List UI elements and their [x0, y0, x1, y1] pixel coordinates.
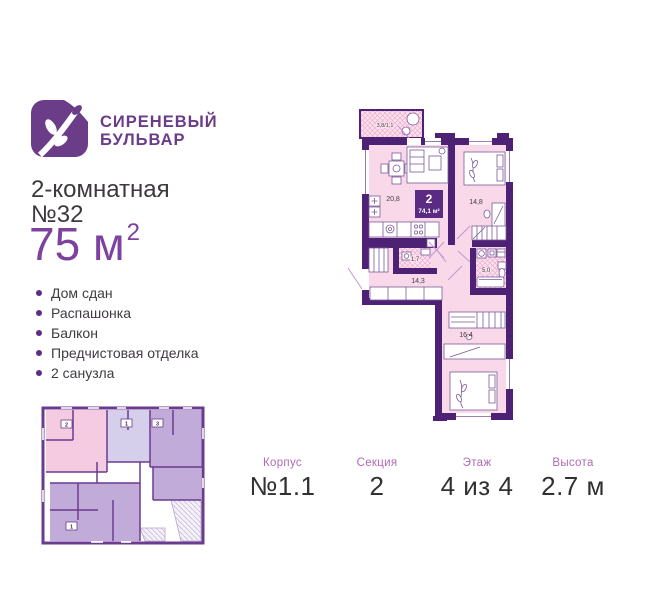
highlighted-apartment-region [46, 410, 107, 472]
area-superscript: 2 [127, 219, 140, 246]
total-area: 75 м2 [29, 219, 138, 270]
detail-label: Высота [533, 457, 613, 469]
overview-badge: 2 [65, 422, 68, 428]
feature-item: Предчистовая отделка [36, 343, 199, 363]
brand-name: СИРЕНЕВЫЙ БУЛЬВАР [100, 113, 218, 150]
feature-item: 2 санузла [36, 363, 199, 383]
detail-value: 2.7 м [533, 471, 613, 502]
detail-section: Секция 2 [345, 457, 409, 502]
room-area-label-bathroom: 5,0 [482, 268, 491, 274]
room-area-label-balcony: 3,8/1,1 [377, 123, 394, 129]
plan-badge: 2 74,1 м² [415, 190, 443, 218]
leaf-branch-icon [31, 100, 88, 162]
detail-label: Этаж [432, 457, 522, 469]
room-area-label-hall: 14,3 [411, 278, 425, 285]
balcony: 3,8/1,1 [360, 110, 423, 138]
entrance-door-swing [348, 268, 362, 289]
detail-value: №1.1 [240, 471, 325, 502]
detail-label: Корпус [240, 457, 325, 469]
overview-badge: 3 [156, 421, 159, 427]
detail-floor: Этаж 4 из 4 [432, 457, 522, 502]
detail-label: Секция [345, 457, 409, 469]
detail-corpus: Корпус №1.1 [240, 457, 325, 502]
flat-card: СИРЕНЕВЫЙ БУЛЬВАР 2-комнатная №32 75 м2 … [0, 0, 662, 600]
brand-logo: СИРЕНЕВЫЙ БУЛЬВАР [31, 100, 218, 162]
feature-item: Распашонка [36, 303, 199, 323]
detail-value: 4 из 4 [432, 471, 522, 502]
room-area-label-bedroom1: 14,8 [469, 199, 483, 206]
feature-item: Дом сдан [36, 283, 199, 303]
room-area-label-wc-small: 1,7 [411, 257, 420, 263]
detail-height: Высота 2.7 м [533, 457, 613, 502]
floor-overview-plan: 2 1 3 1 [33, 400, 215, 555]
room-area-label-living: 20,8 [386, 196, 400, 203]
detail-value: 2 [345, 471, 409, 502]
overview-badge: 1 [70, 524, 73, 530]
apartment-floorplan: 3,8/1,1 [345, 98, 520, 433]
badge-area: 74,1 м² [418, 208, 440, 215]
feature-item: Балкон [36, 323, 199, 343]
overview-badge: 1 [125, 421, 128, 427]
badge-rooms-count: 2 [426, 192, 433, 206]
features-list: Дом сдан Распашонка Балкон Предчистовая … [36, 283, 199, 383]
room-area-label-bedroom2: 16,4 [459, 332, 473, 339]
